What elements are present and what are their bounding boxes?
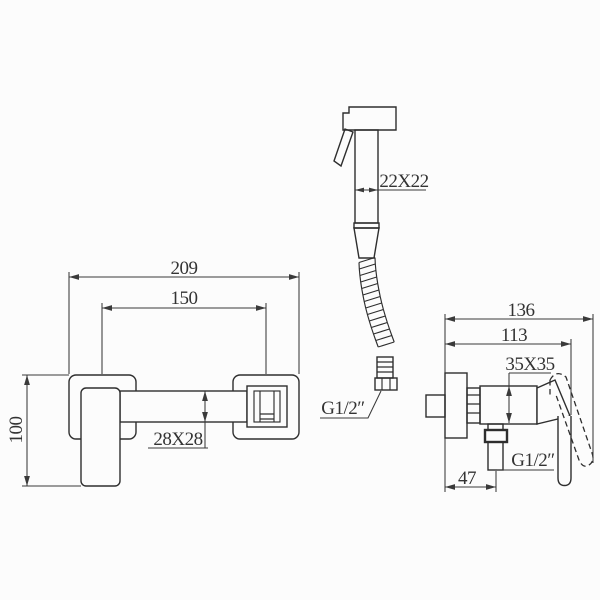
sprayer-trigger — [334, 129, 353, 166]
hose-thread-callout: G1/2″ — [320, 391, 381, 419]
outlet-thread-label: G1/2″ — [511, 450, 554, 471]
dim-47-label: 47 — [458, 468, 476, 489]
sprayer-handle — [355, 130, 378, 223]
ribbed-connector — [467, 388, 480, 423]
hand-sprayer: 22X22 G1/2″ — [320, 107, 429, 419]
dimension-overall-height: 100 — [6, 375, 81, 486]
inlet-fitting — [426, 395, 445, 417]
dim-100-label: 100 — [6, 417, 27, 444]
holder-bracket — [247, 386, 287, 427]
side-view: 136 113 35X35 G1/2″ 47 — [426, 300, 593, 492]
dim-113-label: 113 — [501, 325, 527, 346]
dim-28x28-label: 28X28 — [153, 429, 202, 450]
technical-drawing-canvas: 209 150 100 28X28 — [0, 0, 600, 600]
outlet-nut — [485, 430, 507, 442]
mixer-body — [81, 388, 120, 486]
dimension-mount-spacing: 150 — [102, 288, 266, 374]
front-view: 209 150 100 28X28 — [6, 258, 299, 486]
dimension-head-section: 22X22 — [355, 171, 429, 192]
dimension-overall-width: 209 — [69, 258, 299, 374]
sprayer-handle-cap — [354, 223, 379, 228]
crossbar — [120, 391, 247, 422]
sprayer-head — [343, 107, 396, 130]
hose-thread-label: G1/2″ — [321, 398, 364, 419]
dim-22x22-label: 22X22 — [379, 171, 428, 192]
outlet-pipe — [485, 424, 507, 470]
hose-nut — [375, 378, 397, 390]
shower-hose — [359, 258, 394, 348]
drawing-sheet: 209 150 100 28X28 — [0, 0, 600, 600]
sprayer-taper — [354, 228, 379, 258]
outlet-thread-callout: G1/2″ — [497, 450, 555, 471]
dim-150-label: 150 — [171, 288, 198, 309]
wall-plate-side — [445, 373, 467, 438]
dim-209-label: 209 — [171, 258, 198, 279]
dim-136-label: 136 — [508, 300, 535, 321]
hose-connector — [375, 357, 397, 390]
dim-35x35-label: 35X35 — [505, 354, 554, 375]
